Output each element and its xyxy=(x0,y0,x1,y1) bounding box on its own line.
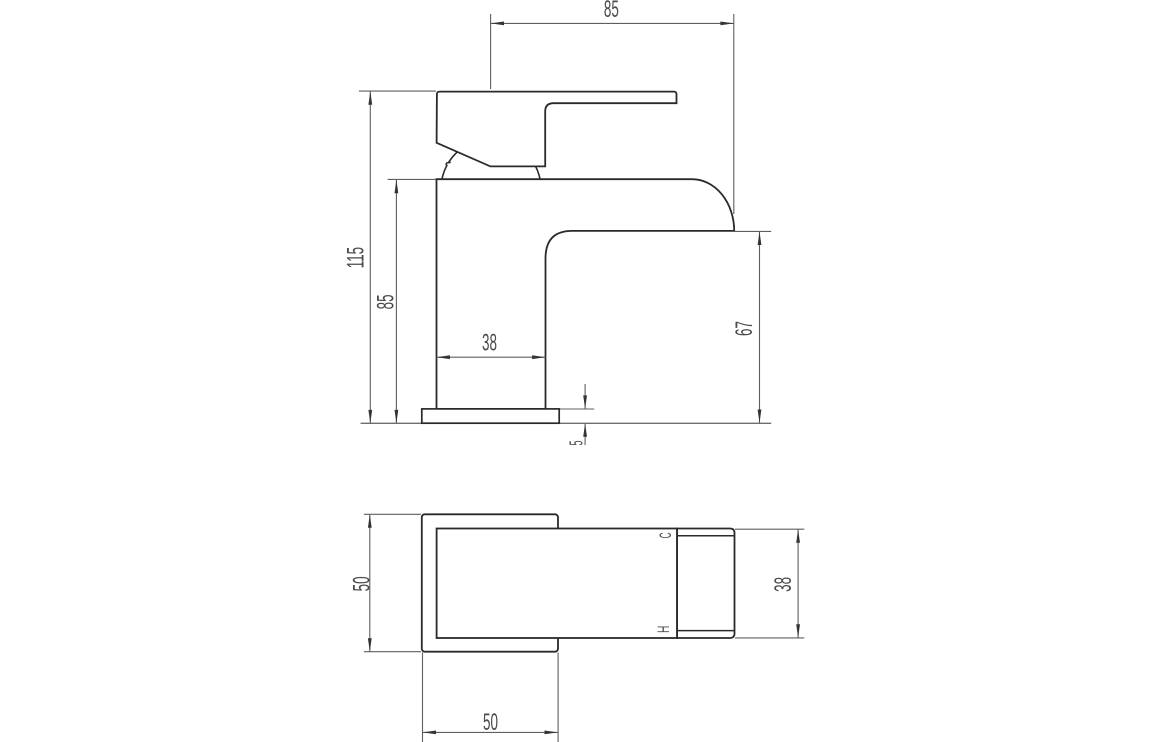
svg-text:38: 38 xyxy=(482,330,497,357)
svg-text:C: C xyxy=(656,532,675,538)
svg-text:85: 85 xyxy=(372,294,399,309)
svg-text:50: 50 xyxy=(348,576,375,591)
svg-text:5: 5 xyxy=(568,440,588,445)
svg-text:115: 115 xyxy=(343,247,370,268)
svg-text:H: H xyxy=(653,626,672,633)
svg-text:85: 85 xyxy=(604,0,619,23)
svg-text:50: 50 xyxy=(483,709,498,736)
svg-text:38: 38 xyxy=(770,577,797,592)
svg-text:67: 67 xyxy=(731,321,758,336)
